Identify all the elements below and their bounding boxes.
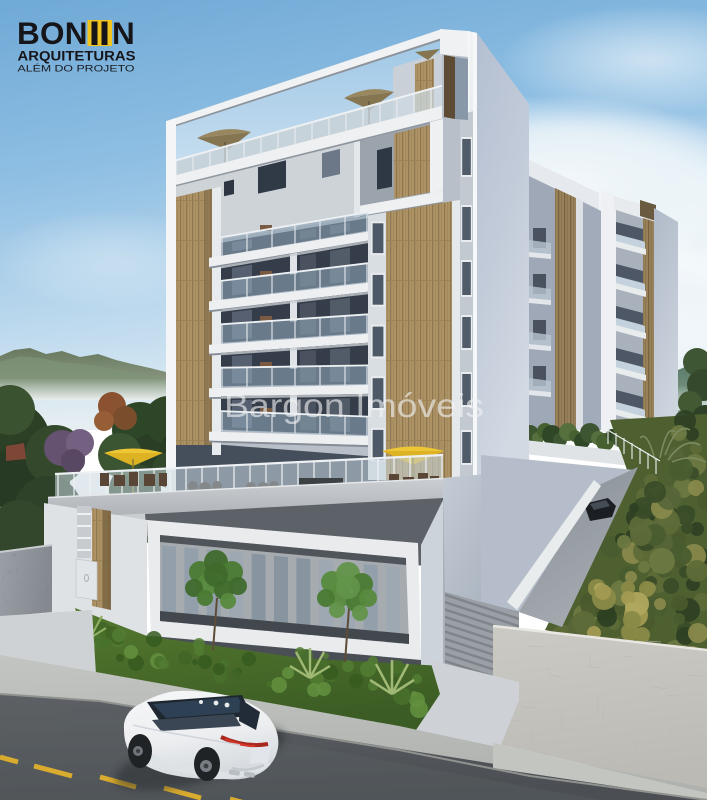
svg-text:N: N <box>112 15 135 51</box>
svg-text:ARQUITETURAS: ARQUITETURAS <box>18 49 136 64</box>
svg-text:BON: BON <box>17 15 88 51</box>
svg-text:Bargon Imóveis: Bargon Imóveis <box>224 387 484 424</box>
svg-text:ALÉM DO PROJETO: ALÉM DO PROJETO <box>18 64 135 74</box>
